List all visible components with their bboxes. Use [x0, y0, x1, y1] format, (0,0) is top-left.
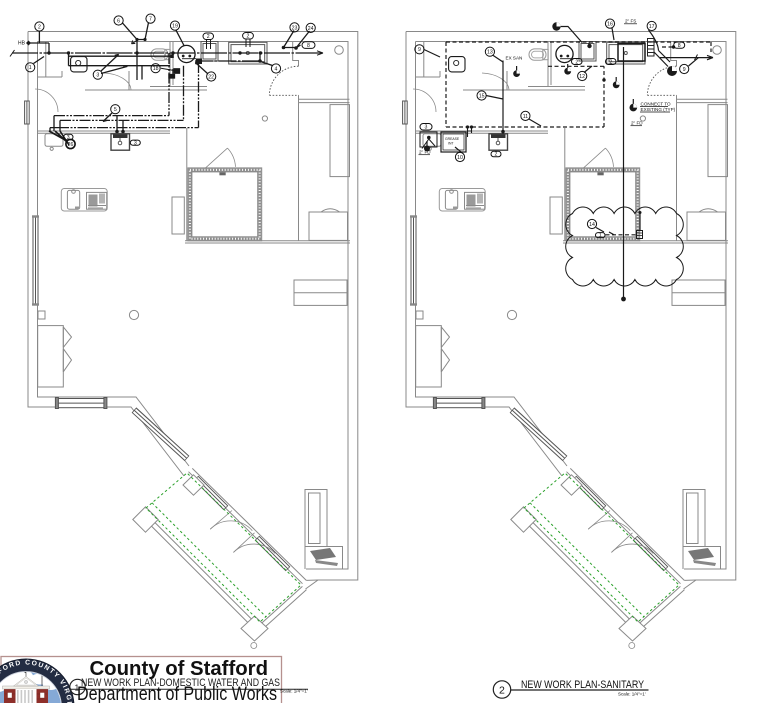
- svg-text:EX SAN: EX SAN: [506, 56, 523, 61]
- svg-text:STAFFORD COUNTY VIRGINIA: STAFFORD COUNTY VIRGINIA: [0, 0, 73, 703]
- svg-text:23: 23: [292, 25, 298, 31]
- svg-text:Scale: 1/4"=1': Scale: 1/4"=1': [618, 692, 646, 697]
- svg-text:18: 18: [153, 66, 159, 72]
- svg-text:8: 8: [678, 43, 681, 49]
- svg-text:2: 2: [575, 60, 578, 66]
- svg-text:15: 15: [479, 93, 485, 99]
- svg-text:1: 1: [29, 65, 32, 71]
- svg-text:5: 5: [114, 107, 117, 113]
- svg-text:6: 6: [117, 18, 120, 24]
- svg-text:2: 2: [495, 152, 498, 158]
- svg-text:9: 9: [418, 47, 421, 53]
- svg-text:3: 3: [425, 125, 428, 131]
- svg-text:Scale: 1/4"=1': Scale: 1/4"=1': [280, 689, 308, 694]
- svg-text:CONNECT TO: CONNECT TO: [641, 102, 672, 107]
- svg-text:2: 2: [609, 60, 612, 66]
- svg-text:GREASE: GREASE: [445, 137, 460, 141]
- svg-text:2: 2: [207, 34, 210, 40]
- svg-text:2: 2: [38, 24, 41, 30]
- svg-text:3: 3: [134, 141, 137, 147]
- svg-text:3: 3: [67, 135, 70, 141]
- svg-text:13: 13: [487, 50, 493, 56]
- svg-text:16: 16: [607, 22, 613, 28]
- svg-text:12: 12: [579, 74, 585, 80]
- svg-text:26: 26: [68, 142, 74, 148]
- svg-text:9: 9: [683, 67, 686, 73]
- svg-text:11: 11: [523, 114, 528, 120]
- svg-text:3: 3: [96, 73, 99, 79]
- svg-text:2" FD: 2" FD: [631, 121, 643, 126]
- svg-text:2" FS: 2" FS: [625, 19, 636, 24]
- svg-text:22: 22: [208, 74, 214, 80]
- svg-text:HB: HB: [18, 40, 26, 46]
- svg-text:10: 10: [457, 155, 463, 161]
- svg-text:19: 19: [172, 24, 178, 30]
- svg-text:17: 17: [649, 24, 655, 30]
- svg-text:8: 8: [307, 43, 310, 49]
- svg-text:INT: INT: [448, 142, 453, 146]
- svg-text:2" FD: 2" FD: [419, 150, 431, 155]
- svg-text:Department of Public Works: Department of Public Works: [77, 684, 277, 703]
- svg-text:4: 4: [275, 66, 278, 72]
- svg-text:7: 7: [149, 17, 152, 23]
- svg-text:EXISTING (TYP): EXISTING (TYP): [641, 107, 676, 112]
- svg-text:2: 2: [247, 34, 250, 40]
- svg-text:1: 1: [599, 233, 602, 239]
- svg-text:2: 2: [499, 685, 505, 697]
- svg-text:NEW WORK PLAN-SANITARY: NEW WORK PLAN-SANITARY: [521, 679, 644, 691]
- svg-text:14: 14: [589, 222, 595, 228]
- svg-text:24: 24: [308, 26, 314, 32]
